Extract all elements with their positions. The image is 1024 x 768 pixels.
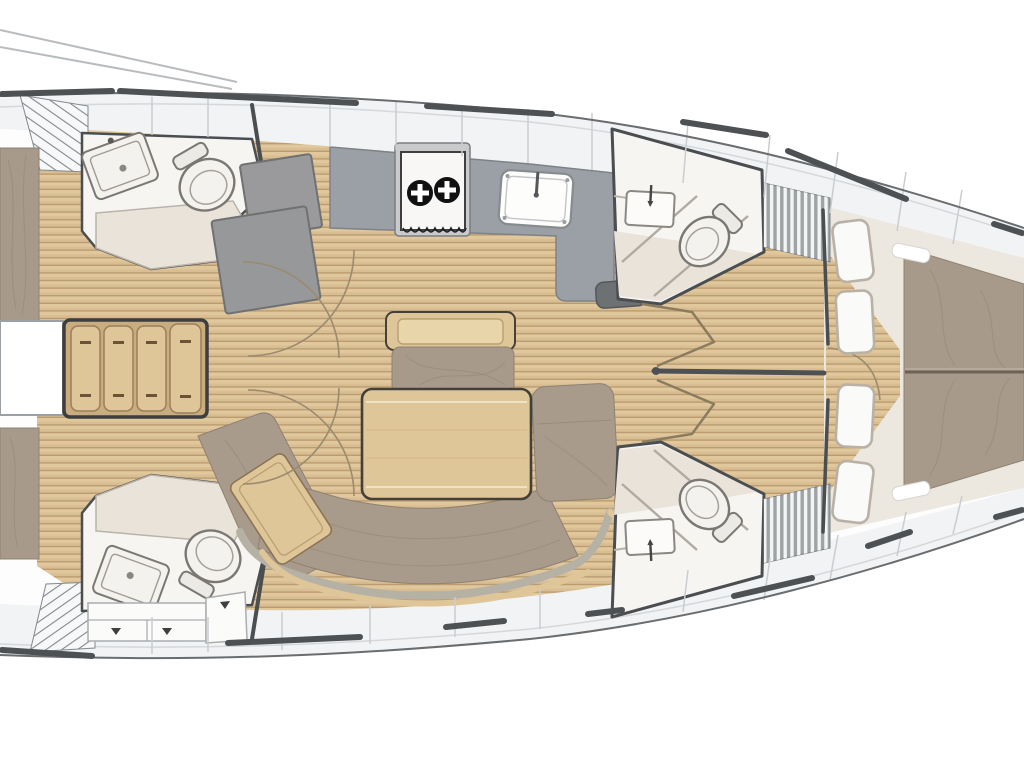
settee-right-arm — [531, 383, 619, 502]
seat-cushion — [831, 460, 874, 524]
exterior-deck-lines — [0, 30, 237, 89]
shower-panel — [211, 206, 321, 314]
stove-icon — [395, 143, 470, 236]
seat-cushion — [835, 290, 874, 354]
seat-cushion — [835, 384, 874, 448]
galley-sink-icon — [498, 170, 574, 229]
companionway — [0, 320, 207, 417]
burner-icon — [408, 181, 432, 205]
dining-table — [362, 389, 531, 499]
yacht-floorplan-page — [0, 0, 1024, 768]
yacht-floorplan — [0, 0, 1024, 768]
burner-icon — [435, 178, 459, 202]
aft-berth-starboard — [0, 428, 39, 559]
engine-compartment — [0, 321, 63, 415]
centerline-partition — [654, 371, 824, 373]
mast-bench — [386, 312, 515, 393]
seat-cushion — [831, 219, 874, 283]
aft-berth-port — [0, 148, 39, 322]
